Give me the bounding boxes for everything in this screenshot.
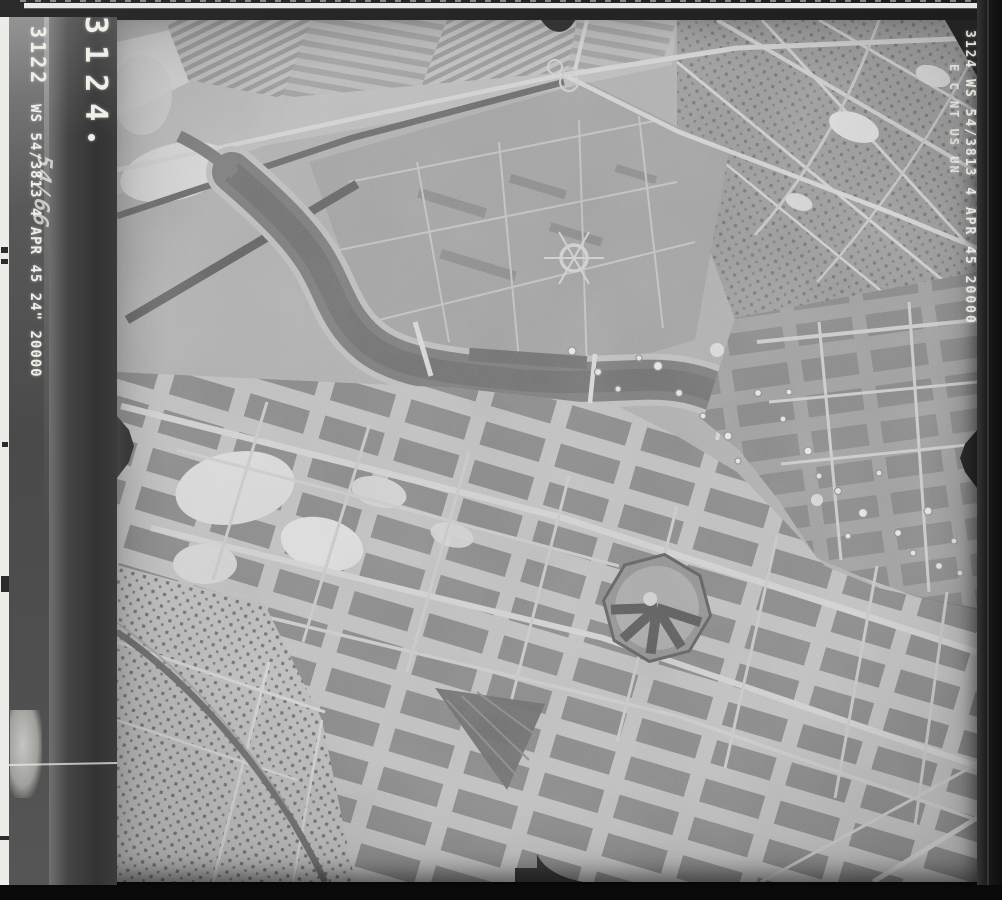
film-top-perforation-marks <box>20 0 995 2</box>
emulsion-smudge <box>10 710 42 798</box>
right-edge-annotation-line2: E C NT US UN <box>947 64 961 175</box>
film-right-edge-line <box>987 0 989 900</box>
film-left-edge-strip <box>0 17 9 885</box>
handwritten-annotation: 54/66 <box>28 152 57 231</box>
film-bottom-border <box>0 885 1002 900</box>
film-rebate-inner <box>49 17 117 885</box>
right-edge-annotation-line1: 3124 WS 54/3813 4 APR 45 20000 <box>962 30 977 325</box>
registration-dot <box>88 134 95 141</box>
film-edge-mark <box>2 442 8 447</box>
film-edge-mark <box>1 576 9 592</box>
film-right-border <box>977 0 1002 900</box>
frame-number-main: 3124 <box>78 16 112 141</box>
photo-vignette-grad <box>117 20 977 882</box>
film-edge-mark <box>1 247 8 253</box>
film-top-edge-strip <box>24 3 997 8</box>
aerial-photo <box>117 20 977 882</box>
film-edge-mark <box>0 836 9 840</box>
frame-number-left: 3122 <box>26 26 50 86</box>
film-scan: 3122WS 54/3813 4 APR 45 24" 20000 54/66 … <box>0 0 1002 900</box>
sortie-annotation: WS 54/3813 4 APR 45 24" 20000 <box>27 104 43 377</box>
film-edge-mark <box>1 259 8 264</box>
